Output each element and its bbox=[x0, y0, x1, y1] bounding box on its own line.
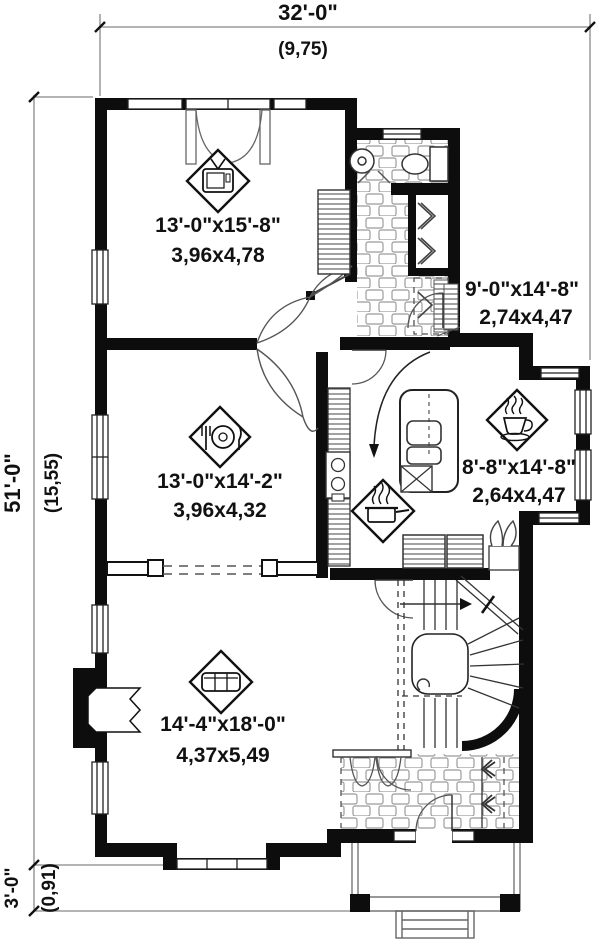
plant-pot bbox=[489, 546, 519, 570]
width-dimension-ft: 32'-0" bbox=[278, 0, 338, 25]
hall-size-m: 2,74x4,47 bbox=[479, 306, 572, 329]
family-room-size-ft: 13'-0"x15'-8" bbox=[155, 214, 281, 237]
width-dimension-m: (9,75) bbox=[278, 39, 328, 60]
porch bbox=[350, 843, 520, 938]
fireplace bbox=[73, 668, 140, 748]
living-room-size-ft: 14'-4"x18'-0" bbox=[160, 713, 286, 736]
sofa-icon bbox=[190, 651, 252, 713]
stair-direction-arrow bbox=[460, 598, 472, 610]
breakfast-size-ft: 8'-8"x14'-8" bbox=[462, 456, 576, 479]
dining-icon bbox=[190, 407, 250, 467]
plant bbox=[490, 521, 516, 546]
family-room-size-m: 3,96x4,78 bbox=[171, 244, 265, 267]
bookshelves bbox=[403, 521, 519, 570]
porch-dimension-m: (0,91) bbox=[39, 863, 60, 913]
hall-size-ft: 9'-0"x14'-8" bbox=[465, 278, 579, 301]
dining-room-size-ft: 13'-0"x14'-2" bbox=[157, 470, 283, 493]
pocket-door bbox=[444, 284, 458, 330]
floor-plan: 32'-0" (9,75) 51'-0" (15,55) 3'-0" (0,91… bbox=[0, 0, 600, 942]
porch-dimension-ft: 3'-0" bbox=[2, 868, 23, 909]
bay-window-curtain bbox=[186, 110, 270, 164]
dining-room-size-m: 3,96x4,32 bbox=[173, 499, 266, 522]
living-room-size-m: 4,37x5,49 bbox=[176, 744, 269, 767]
interior-walls bbox=[95, 140, 490, 580]
toilet-bowl bbox=[402, 154, 428, 174]
floor-plan-page: 32'-0" (9,75) 51'-0" (15,55) 3'-0" (0,91… bbox=[0, 0, 600, 942]
depth-dimension-ft: 51'-0" bbox=[0, 453, 25, 513]
porch-post bbox=[500, 894, 520, 912]
depth-dimension-m: (15,55) bbox=[42, 453, 63, 513]
beam-columns bbox=[107, 560, 318, 576]
toilet-tank bbox=[430, 147, 448, 181]
linen-closet bbox=[318, 190, 350, 274]
breakfast-size-m: 2,64x4,47 bbox=[472, 484, 565, 507]
porch-post bbox=[350, 894, 370, 912]
coffee-icon bbox=[487, 390, 547, 450]
stair-island bbox=[412, 634, 468, 694]
curved-stair-wall bbox=[462, 689, 519, 746]
